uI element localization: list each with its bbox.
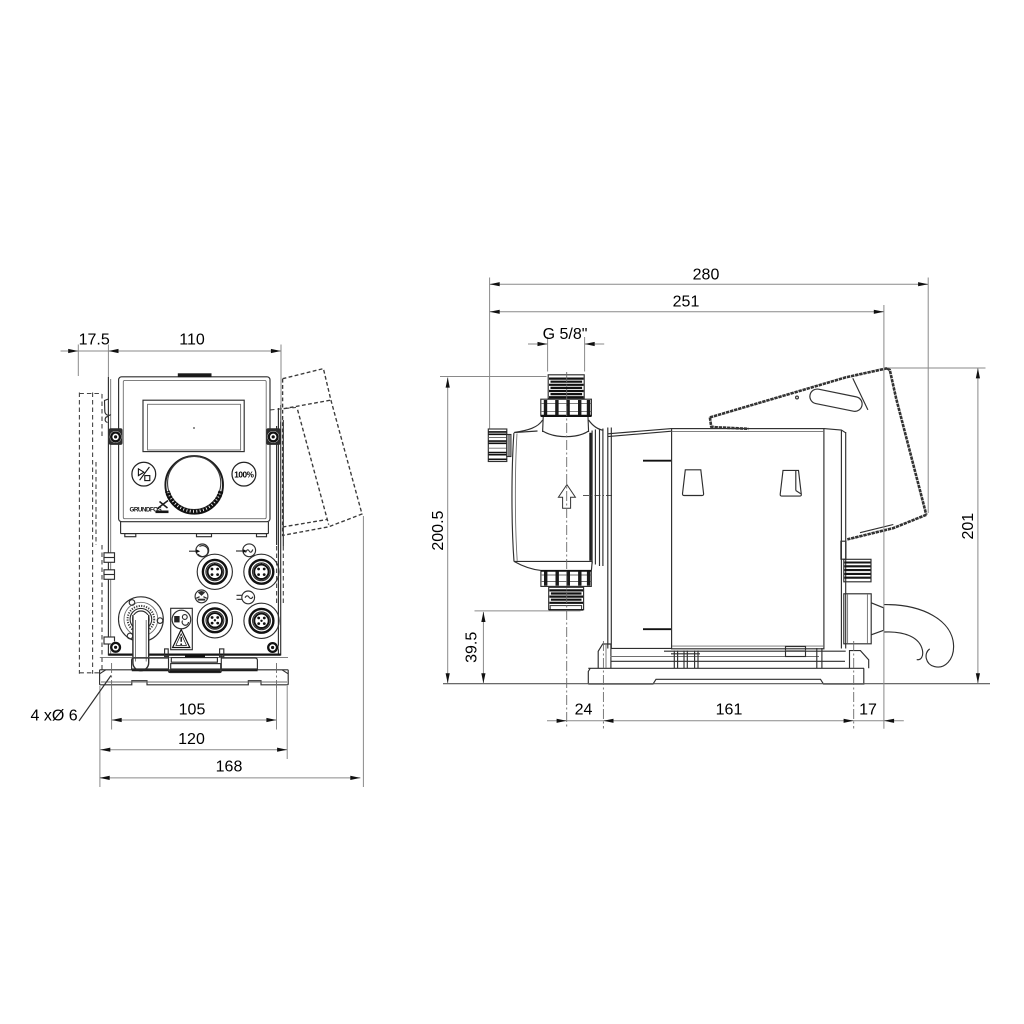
svg-text:105: 105 bbox=[179, 702, 206, 719]
svg-text:4 xØ 6: 4 xØ 6 bbox=[31, 708, 78, 725]
svg-text:24: 24 bbox=[575, 702, 593, 719]
svg-text:110: 110 bbox=[179, 331, 205, 348]
svg-text:168: 168 bbox=[216, 759, 243, 776]
svg-text:251: 251 bbox=[673, 294, 700, 311]
svg-text:G 5/8": G 5/8" bbox=[543, 326, 588, 343]
svg-text:39.5: 39.5 bbox=[463, 632, 480, 663]
svg-text:100%: 100% bbox=[234, 470, 254, 479]
svg-text:201: 201 bbox=[960, 513, 977, 540]
svg-text:17: 17 bbox=[859, 702, 877, 719]
svg-text:280: 280 bbox=[693, 266, 720, 283]
svg-text:200.5: 200.5 bbox=[430, 510, 447, 550]
svg-text:17.5: 17.5 bbox=[79, 331, 110, 348]
svg-text:161: 161 bbox=[716, 702, 743, 719]
svg-text:120: 120 bbox=[178, 731, 205, 748]
